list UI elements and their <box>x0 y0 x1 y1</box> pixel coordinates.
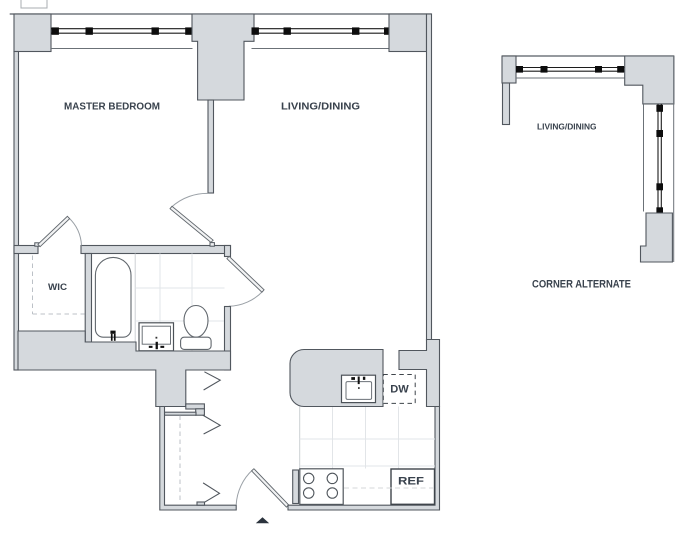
svg-text:LIVING/DINING: LIVING/DINING <box>281 102 360 113</box>
svg-text:WIC: WIC <box>48 282 67 292</box>
svg-text:CORNER ALTERNATE: CORNER ALTERNATE <box>532 278 631 290</box>
svg-text:LIVING/DINING: LIVING/DINING <box>537 122 597 131</box>
svg-text:REF: REF <box>398 476 424 488</box>
svg-text:DW: DW <box>390 384 409 396</box>
svg-text:MASTER BEDROOM: MASTER BEDROOM <box>64 102 160 113</box>
